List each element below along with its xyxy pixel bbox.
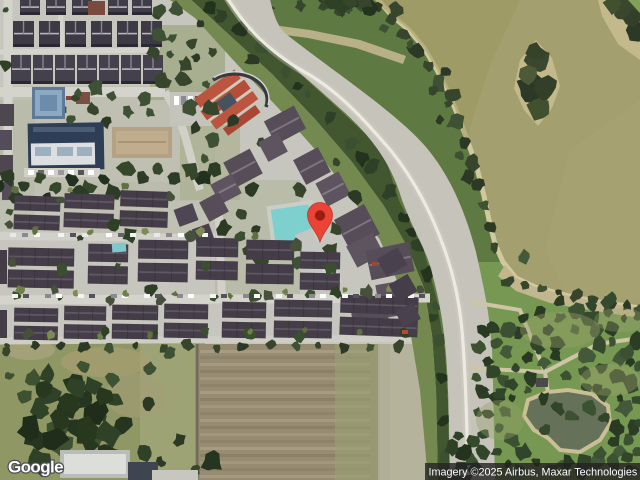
- svg-text:Google: Google: [8, 458, 63, 477]
- svg-text:Imagery ©2025 Airbus, Maxar Te: Imagery ©2025 Airbus, Maxar Technologies: [429, 467, 638, 479]
